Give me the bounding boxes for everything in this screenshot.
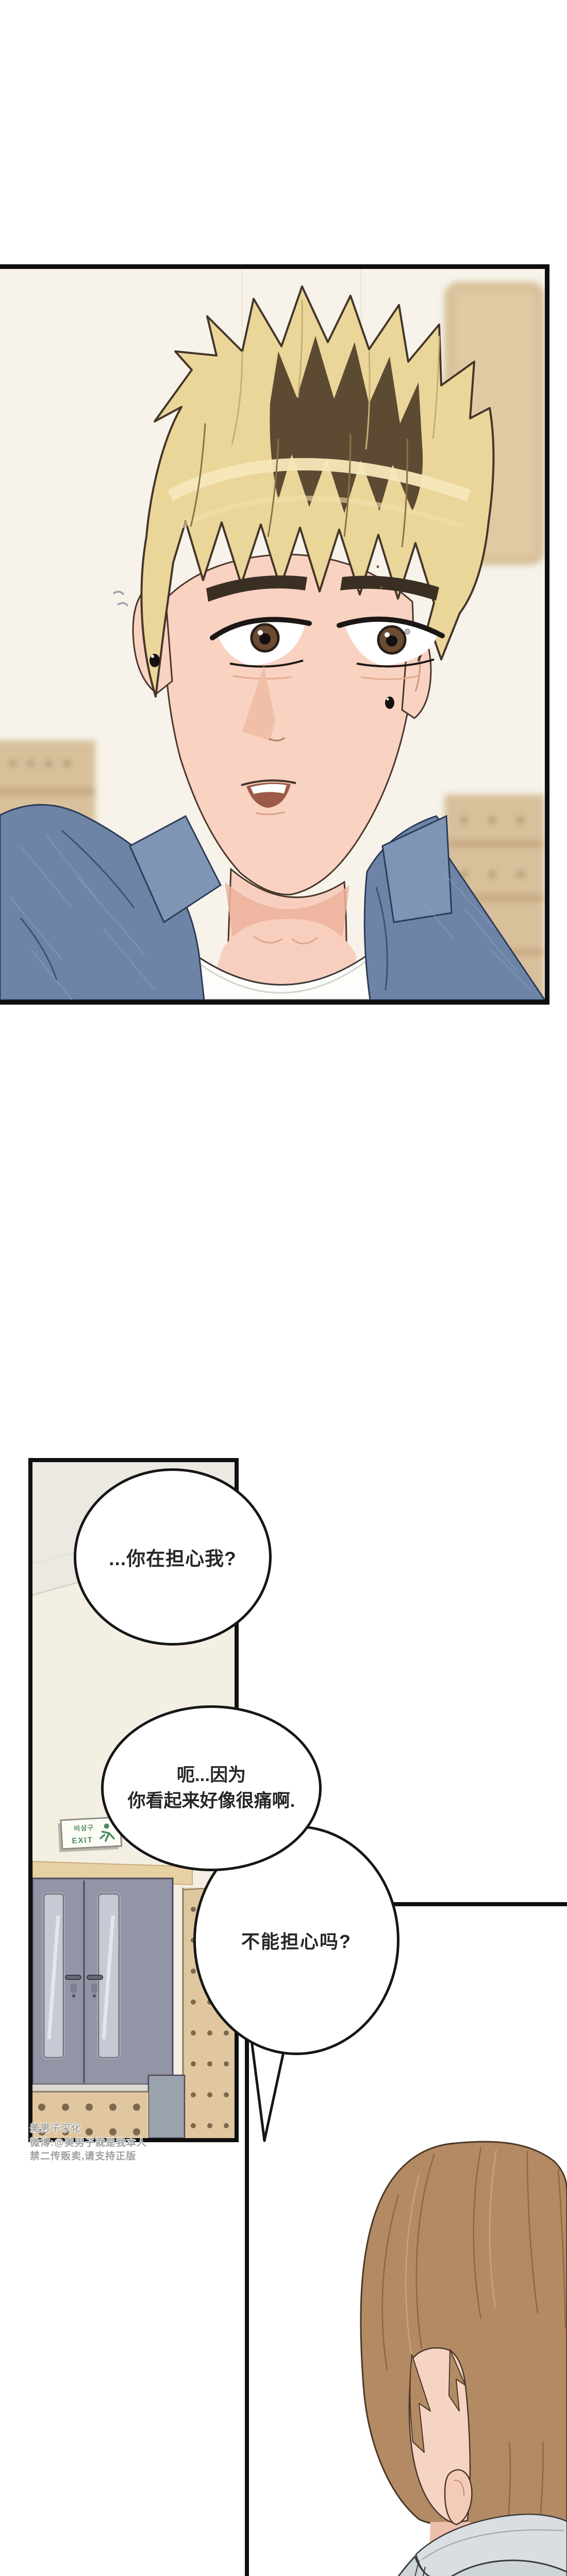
double-doors — [32, 1878, 173, 2084]
panel-1-artwork — [0, 269, 545, 1000]
door-edge-strip — [148, 2075, 185, 2138]
beauty-mark-1 — [377, 566, 379, 568]
speech-bubble-2: 呃...因为 你看起来好像很痛啊. — [101, 1705, 322, 1871]
panel-1-portrait — [0, 264, 549, 1005]
speech-bubble-2-line2: 你看起来好像很痛啊. — [128, 1788, 295, 1814]
credit-line-2: 微博:@美男子就是我本人 — [30, 2135, 147, 2149]
speech-bubble-2-line1: 呃...因为 — [128, 1762, 295, 1788]
exit-sign-korean-text: 비상구 — [74, 1824, 94, 1833]
credit-line-3: 禁二传贩卖,请支持正版 — [30, 2148, 136, 2162]
speech-bubble-1: ...你在担心我? — [74, 1468, 272, 1646]
beauty-mark-2 — [380, 586, 383, 589]
speech-bubble-1-text: ...你在担心我? — [109, 1543, 236, 1571]
speech-bubble-3-text: 不能担心吗? — [241, 1927, 352, 1954]
credit-line-1: 美男子汉化 — [30, 2121, 81, 2134]
comic-page: 비상구 EXIT — [0, 0, 567, 2576]
exit-sign-english-text: EXIT — [72, 1836, 93, 1845]
